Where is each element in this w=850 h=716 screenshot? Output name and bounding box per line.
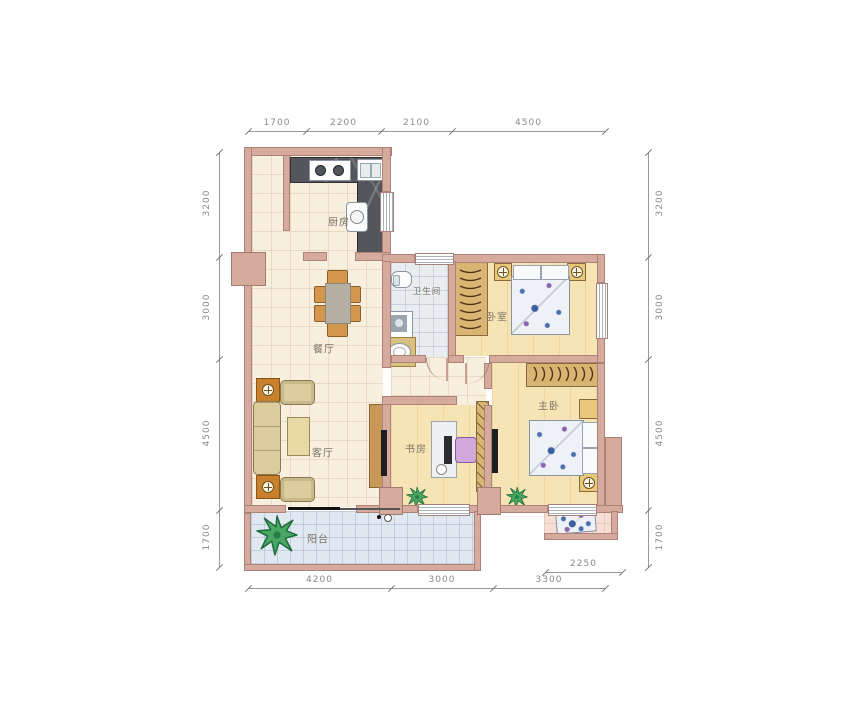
side-table-lamp-icon — [256, 378, 280, 402]
dim-label: 3200 — [202, 183, 212, 223]
wardrobe-icon — [526, 363, 599, 387]
dim-label: 2100 — [381, 118, 452, 128]
wall — [283, 155, 290, 231]
wall — [452, 254, 605, 263]
sink-icon — [357, 159, 383, 181]
window — [548, 504, 597, 516]
pillow-icon — [582, 448, 598, 474]
wall — [382, 147, 391, 192]
hangers-icon — [456, 263, 485, 333]
tv-icon — [492, 429, 498, 473]
dim-label: 1700 — [655, 517, 665, 557]
dim-label: 3000 — [391, 575, 493, 585]
nightstand-icon — [494, 263, 512, 281]
dim-tick — [216, 564, 223, 571]
door-leaf — [465, 363, 467, 384]
wall — [244, 513, 251, 571]
wall — [244, 147, 252, 513]
room-label-dining: 餐厅 — [313, 341, 335, 356]
column — [231, 252, 266, 286]
wall — [382, 396, 457, 405]
toilet-icon — [391, 271, 412, 288]
room-label-balcony: 阳台 — [307, 531, 329, 546]
pillow-icon — [582, 422, 598, 448]
sliding-door — [288, 507, 340, 510]
room-label-kitchen: 厨房 — [328, 214, 350, 229]
stove-icon — [309, 160, 351, 181]
office-chair-icon — [455, 437, 477, 463]
dim-tick — [602, 585, 609, 592]
column — [477, 487, 501, 515]
door-leaf — [446, 358, 448, 381]
wall — [244, 147, 392, 156]
dim-label: 3200 — [655, 183, 665, 223]
plant-icon — [256, 513, 298, 557]
armchair-icon — [280, 380, 315, 405]
room-label-master-bedroom: 主卧 — [538, 398, 560, 413]
dim-label: 4200 — [248, 575, 391, 585]
wall — [595, 505, 623, 513]
dim-label: 1700 — [248, 118, 306, 128]
wall — [391, 355, 426, 363]
wall — [448, 355, 464, 363]
wall — [597, 363, 605, 513]
wall — [597, 337, 605, 363]
dim-line — [545, 572, 622, 573]
wall — [605, 437, 622, 513]
desk-icon — [431, 421, 457, 478]
wall — [303, 252, 327, 261]
floor-plan-canvas: 1700 2200 2100 4500 3200 3000 4500 1700 … — [0, 0, 850, 716]
door-knob-icon — [384, 514, 392, 522]
wardrobe-icon — [455, 262, 488, 336]
dim-label: 3000 — [202, 287, 212, 327]
wall — [244, 564, 481, 571]
pillow-icon — [513, 265, 541, 280]
wall — [544, 533, 618, 540]
dim-tick — [602, 128, 609, 135]
hangers-icon — [527, 364, 596, 384]
window — [415, 253, 454, 265]
dim-label: 3300 — [493, 575, 605, 585]
bed-icon — [529, 420, 584, 476]
room-label-living: 客厅 — [312, 445, 334, 460]
window — [596, 283, 608, 339]
dim-tick — [619, 569, 626, 576]
tv-icon — [381, 430, 387, 476]
wall — [382, 261, 391, 368]
wall — [448, 261, 456, 363]
side-table-lamp-icon — [256, 475, 280, 499]
pillow-icon — [541, 265, 569, 280]
nightstand-icon — [579, 399, 599, 419]
dim-line — [248, 588, 605, 589]
dim-label: 2250 — [545, 559, 622, 569]
dining-table-icon — [325, 283, 351, 324]
dim-line — [248, 131, 605, 132]
coffee-table-icon — [287, 417, 310, 456]
column — [379, 487, 403, 515]
wall — [597, 254, 605, 283]
dim-label: 1700 — [202, 517, 212, 557]
dim-tick — [645, 564, 652, 571]
dim-label: 2200 — [306, 118, 381, 128]
wall — [474, 511, 481, 571]
room-label-bathroom: 卫生间 — [413, 285, 442, 297]
armchair-icon — [280, 477, 315, 502]
chair-icon — [327, 322, 348, 337]
sliding-door — [340, 508, 400, 510]
room-label-bedroom: 卧室 — [486, 309, 508, 324]
dim-label: 4500 — [202, 413, 212, 453]
dim-label: 3000 — [655, 287, 665, 327]
wall — [244, 505, 286, 513]
door-knob-icon — [377, 515, 381, 519]
room-label-study: 书房 — [405, 441, 427, 456]
bed-icon — [511, 276, 570, 335]
dim-label: 4500 — [655, 413, 665, 453]
window — [380, 192, 394, 232]
wall — [489, 355, 605, 363]
window — [418, 504, 470, 516]
dim-label: 4500 — [452, 118, 605, 128]
sofa-icon — [253, 401, 281, 475]
